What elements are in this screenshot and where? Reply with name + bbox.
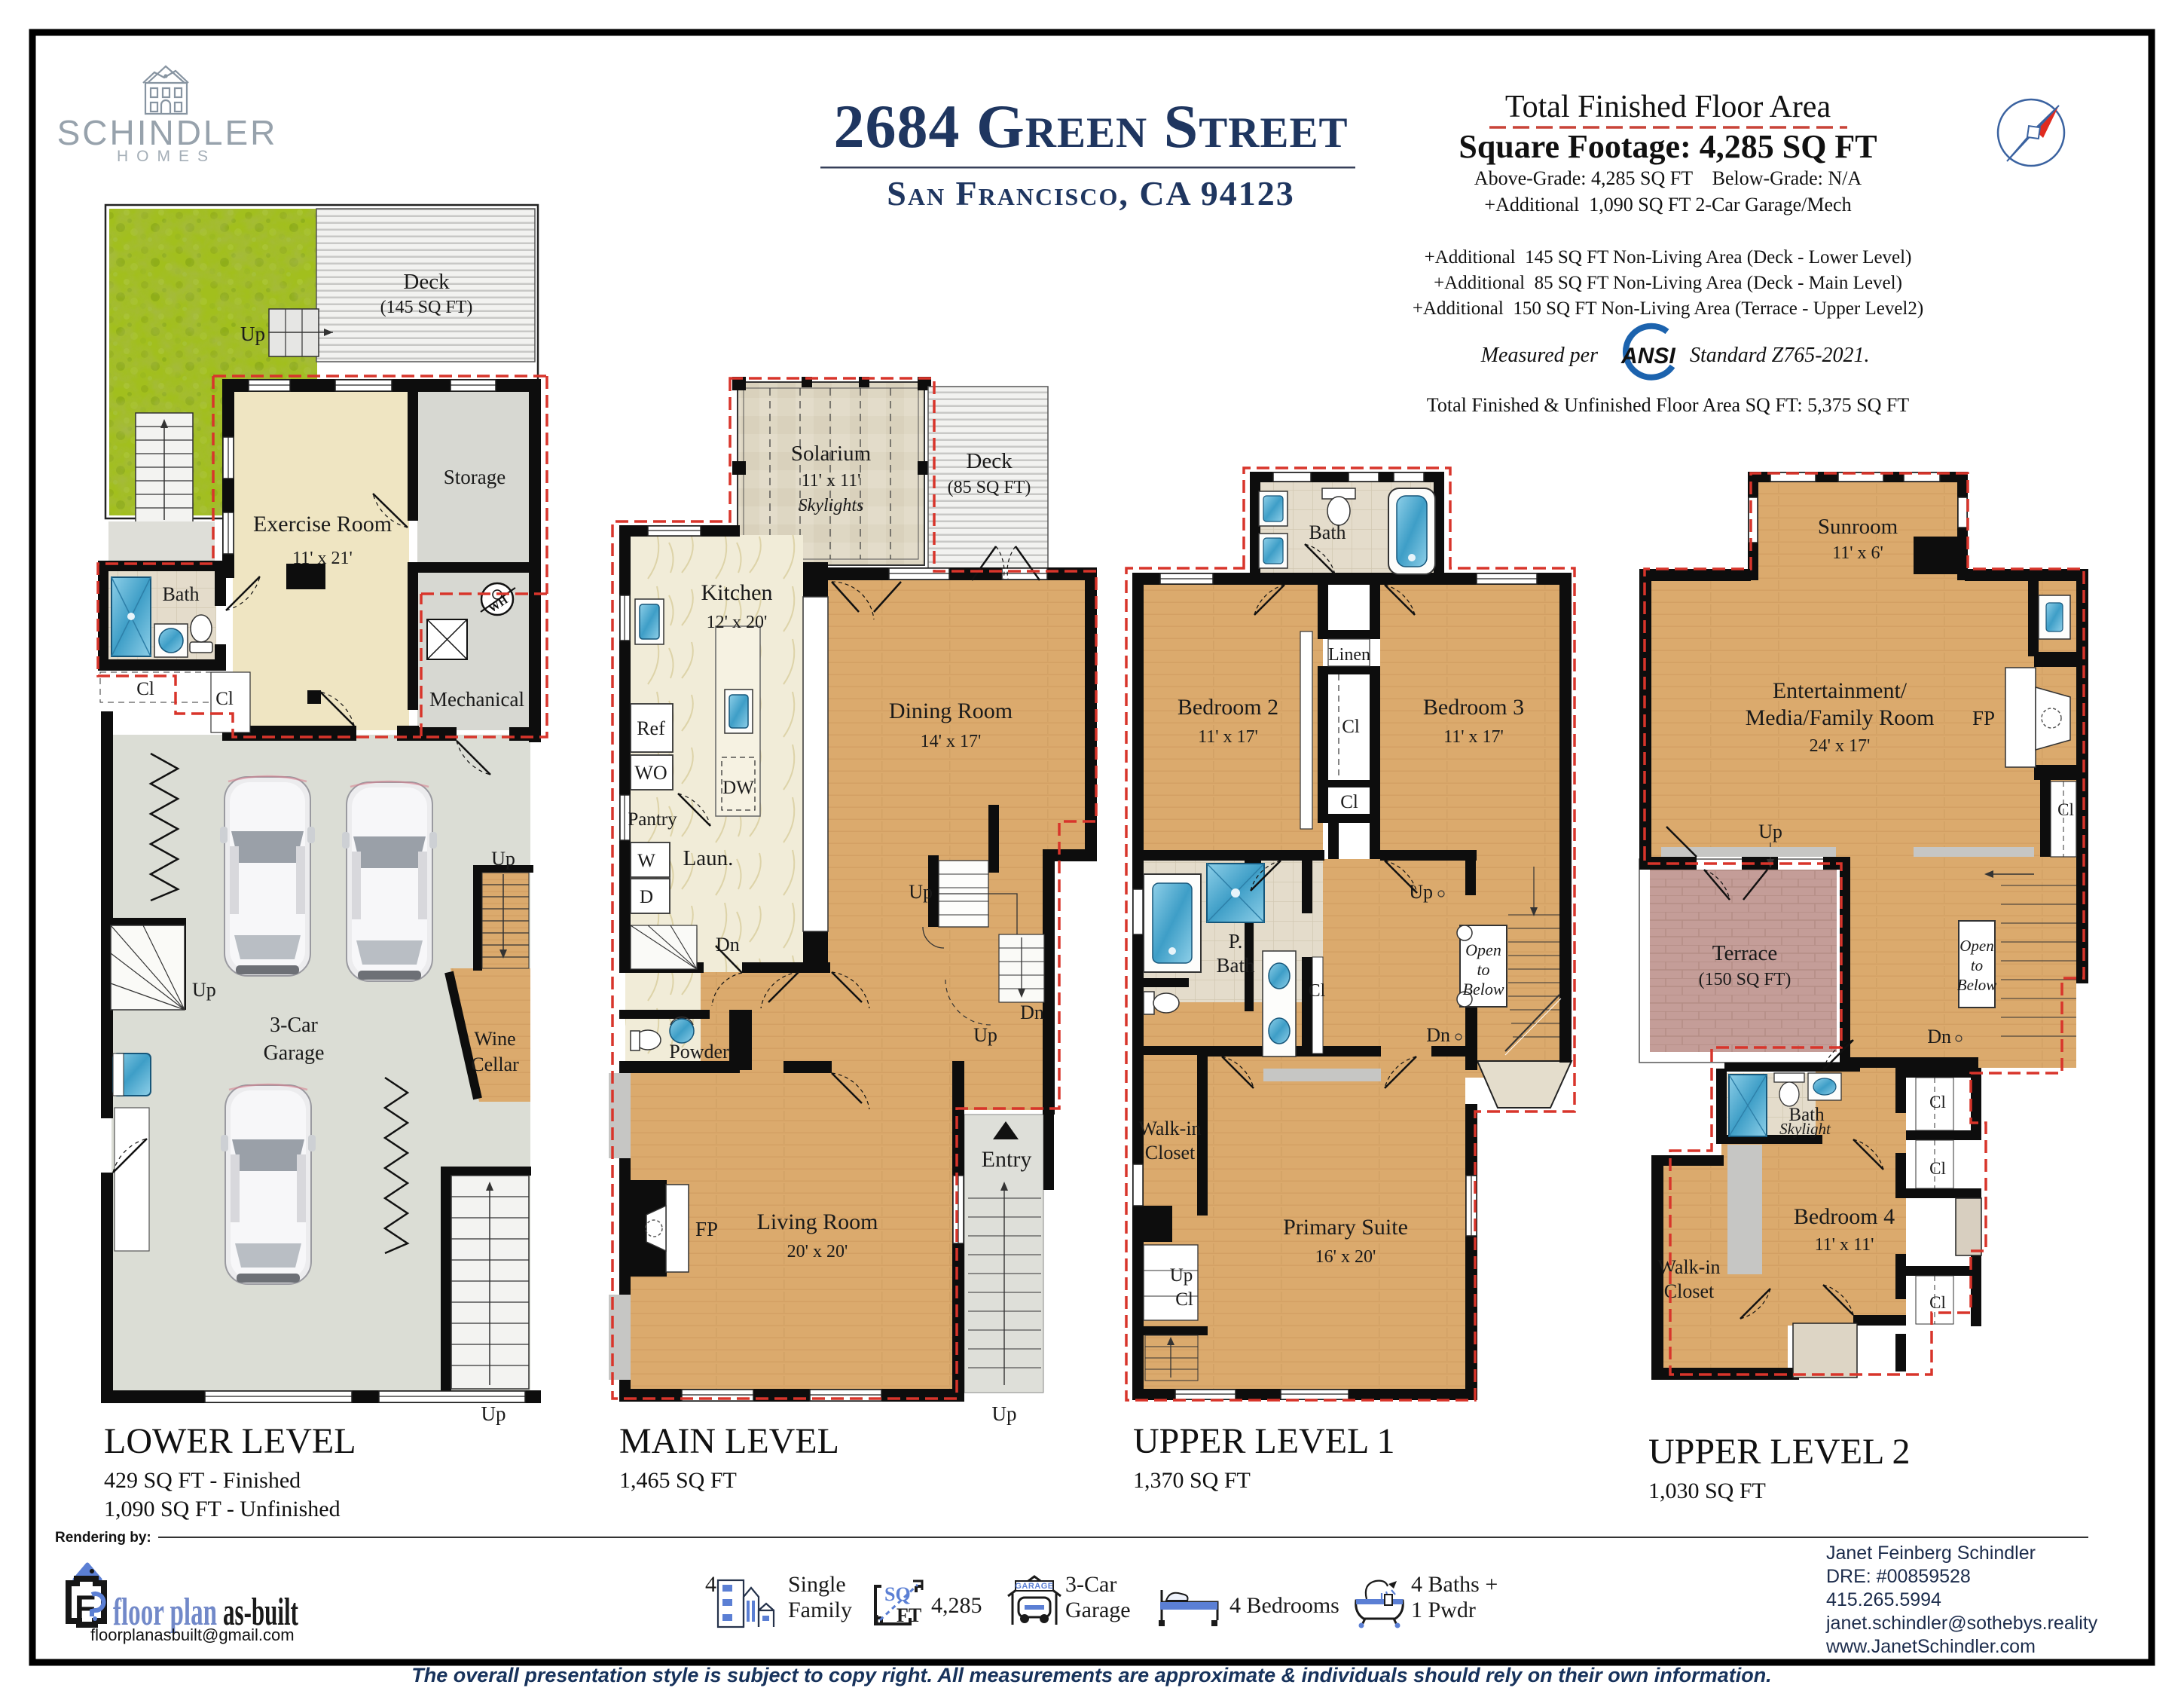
- svg-text:Dn: Dn: [1927, 1026, 1951, 1047]
- svg-text:Up: Up: [973, 1024, 997, 1046]
- svg-text:Cl: Cl: [2057, 800, 2074, 819]
- svg-text:Cl: Cl: [1929, 1293, 1946, 1312]
- svg-text:GARAGE: GARAGE: [1015, 1582, 1053, 1591]
- svg-text:Up: Up: [192, 979, 216, 1001]
- svg-text:floorplanasbuilt@gmail.com: floorplanasbuilt@gmail.com: [90, 1625, 295, 1644]
- svg-text:ANSI: ANSI: [1620, 344, 1675, 368]
- svg-text:Skylights: Skylights: [799, 496, 864, 515]
- svg-text:UPPER LEVEL 2: UPPER LEVEL 2: [1648, 1432, 1911, 1472]
- svg-text:Open: Open: [1465, 940, 1501, 959]
- svg-text:Rendering by:: Rendering by:: [55, 1530, 151, 1546]
- svg-text:UPPER LEVEL 1: UPPER LEVEL 1: [1133, 1421, 1395, 1461]
- svg-text:www.JanetSchindler.com: www.JanetSchindler.com: [1825, 1636, 2036, 1657]
- svg-text:Open: Open: [1959, 937, 1994, 955]
- svg-text:Total Finished & Unfinished Fl: Total Finished & Unfinished Floor Area S…: [1427, 394, 1910, 416]
- svg-text:Living Room: Living Room: [757, 1209, 878, 1234]
- svg-text:Dining Room: Dining Room: [889, 699, 1013, 723]
- svg-text:Cl: Cl: [1929, 1159, 1946, 1178]
- svg-text:12' x 20': 12' x 20': [707, 613, 768, 632]
- svg-text:W: W: [637, 851, 655, 871]
- svg-text:(85 SQ FT): (85 SQ FT): [948, 478, 1031, 497]
- svg-text:Single: Single: [788, 1572, 846, 1597]
- svg-text:Entertainment/: Entertainment/: [1773, 678, 1908, 703]
- svg-text:LOWER LEVEL: LOWER LEVEL: [104, 1421, 356, 1461]
- svg-text:The overall presentation style: The overall presentation style is subjec…: [411, 1664, 1771, 1686]
- svg-text:SQ: SQ: [884, 1583, 911, 1605]
- svg-text:3-Car: 3-Car: [270, 1014, 318, 1037]
- svg-text:MAIN LEVEL: MAIN LEVEL: [619, 1421, 839, 1461]
- svg-text:Terrace: Terrace: [1712, 941, 1778, 965]
- svg-text:D: D: [640, 887, 653, 907]
- svg-text:11' x 6': 11' x 6': [1832, 543, 1883, 563]
- svg-text:+Additional 150 SQ FT Non-Liv: +Additional 150 SQ FT Non-Living Area (T…: [1413, 298, 1923, 319]
- svg-text:Walk-in: Walk-in: [1657, 1256, 1720, 1278]
- svg-text:Linen: Linen: [1328, 645, 1370, 665]
- svg-text:San Francisco, CA 94123: San Francisco, CA 94123: [887, 174, 1295, 213]
- svg-text:Deck: Deck: [403, 270, 450, 294]
- svg-text:20' x 20': 20' x 20': [787, 1242, 848, 1261]
- svg-text:DW: DW: [722, 778, 754, 798]
- svg-text:Above-Grade: 4,285 SQ FT Be: Above-Grade: 4,285 SQ FT Below-Grade: N/…: [1474, 167, 1862, 189]
- svg-text:Primary Suite: Primary Suite: [1283, 1215, 1408, 1240]
- svg-text:Closet: Closet: [1145, 1142, 1196, 1164]
- svg-text:to: to: [1971, 956, 1983, 974]
- svg-text:11' x 17': 11' x 17': [1198, 727, 1258, 747]
- svg-text:Up: Up: [491, 848, 515, 870]
- svg-text:Square Footage: 4,285 SQ FT: Square Footage: 4,285 SQ FT: [1459, 128, 1877, 165]
- svg-text:(145 SQ FT): (145 SQ FT): [380, 298, 473, 317]
- svg-text:Garage: Garage: [264, 1041, 325, 1065]
- svg-text:Wine: Wine: [474, 1028, 515, 1050]
- svg-text:1,090 SQ FT - Unfinished: 1,090 SQ FT - Unfinished: [104, 1497, 341, 1521]
- svg-text:Up: Up: [1170, 1265, 1193, 1286]
- svg-text:HOMES: HOMES: [117, 148, 216, 165]
- svg-text:Walk-in: Walk-in: [1138, 1118, 1201, 1139]
- svg-text:1,465 SQ FT: 1,465 SQ FT: [619, 1468, 737, 1493]
- svg-text:Cl: Cl: [1309, 981, 1326, 1001]
- svg-text:1,030 SQ FT: 1,030 SQ FT: [1648, 1479, 1766, 1503]
- svg-text:Cl: Cl: [215, 689, 234, 709]
- svg-text:Storage: Storage: [444, 466, 506, 488]
- svg-text:janet.schindler@sothebys.reali: janet.schindler@sothebys.reality: [1825, 1613, 2098, 1634]
- svg-text:+Additional 145 SQ FT Non-Liv: +Additional 145 SQ FT Non-Living Area (D…: [1425, 247, 1912, 268]
- svg-text:1 Pwdr: 1 Pwdr: [1411, 1598, 1476, 1622]
- svg-text:Sunroom: Sunroom: [1818, 515, 1898, 539]
- svg-text:Exercise Room: Exercise Room: [253, 512, 392, 537]
- svg-text:4 Baths +: 4 Baths +: [1411, 1572, 1498, 1597]
- svg-text:FT: FT: [897, 1604, 921, 1626]
- svg-text:2684 Green Street: 2684 Green Street: [834, 92, 1349, 161]
- svg-text:(150 SQ FT): (150 SQ FT): [1699, 970, 1791, 989]
- svg-text:Up: Up: [1758, 821, 1782, 842]
- svg-text:Family: Family: [788, 1598, 852, 1622]
- svg-text:Cl: Cl: [1929, 1093, 1946, 1112]
- svg-text:Dn: Dn: [1426, 1024, 1450, 1046]
- svg-text:429 SQ FT - Finished: 429 SQ FT - Finished: [104, 1468, 301, 1493]
- svg-text:Bedroom 4: Bedroom 4: [1794, 1204, 1895, 1229]
- svg-text:Bath: Bath: [1309, 521, 1346, 543]
- svg-text:Cl: Cl: [1340, 792, 1358, 812]
- svg-text:Standard Z765-2021.: Standard Z765-2021.: [1690, 344, 1870, 367]
- svg-text:Up: Up: [1409, 881, 1433, 903]
- svg-text:Entry: Entry: [982, 1147, 1032, 1172]
- svg-text:Below: Below: [1463, 980, 1504, 998]
- svg-text:Up: Up: [240, 323, 265, 345]
- svg-text:Up: Up: [992, 1402, 1017, 1425]
- svg-text:16' x 20': 16' x 20': [1315, 1247, 1376, 1267]
- svg-text:Kitchen: Kitchen: [701, 580, 773, 605]
- svg-text:P.: P.: [1229, 930, 1243, 953]
- svg-text:FP: FP: [1972, 707, 1995, 729]
- svg-text:3-Car: 3-Car: [1065, 1572, 1116, 1597]
- svg-text:Closet: Closet: [1664, 1280, 1715, 1302]
- svg-text:Measured per: Measured per: [1480, 344, 1603, 367]
- svg-text:4 Bedrooms: 4 Bedrooms: [1229, 1593, 1339, 1618]
- svg-text:DRE: #00859528: DRE: #00859528: [1826, 1566, 1971, 1587]
- svg-text:+Additional 85 SQ FT Non-Livi: +Additional 85 SQ FT Non-Living Area (De…: [1434, 273, 1902, 293]
- svg-text:Deck: Deck: [966, 449, 1013, 473]
- svg-text:WO: WO: [634, 762, 667, 784]
- svg-text:Cellar: Cellar: [471, 1053, 519, 1075]
- svg-text:to: to: [1477, 960, 1489, 979]
- svg-text:SCHINDLER: SCHINDLER: [57, 113, 278, 152]
- svg-text:11' x 11': 11' x 11': [1815, 1235, 1874, 1255]
- svg-text:Cl: Cl: [1175, 1289, 1193, 1310]
- svg-text:Bedroom 2: Bedroom 2: [1178, 695, 1278, 720]
- svg-text:1,370 SQ FT: 1,370 SQ FT: [1133, 1468, 1251, 1493]
- svg-text:Ref: Ref: [637, 717, 665, 739]
- svg-text:Below: Below: [1957, 976, 1997, 994]
- svg-text:Bath: Bath: [162, 583, 199, 605]
- svg-text:Pantry: Pantry: [628, 809, 677, 830]
- svg-text:Dn: Dn: [1020, 1001, 1044, 1023]
- svg-text:11' x 17': 11' x 17': [1443, 727, 1504, 747]
- svg-text:415.265.5994: 415.265.5994: [1826, 1589, 1941, 1610]
- svg-text:4: 4: [705, 1572, 716, 1597]
- svg-text:Solarium: Solarium: [791, 442, 872, 466]
- svg-text:Powder: Powder: [669, 1041, 729, 1063]
- svg-text:Laun.: Laun.: [683, 846, 734, 870]
- svg-text:Mechanical: Mechanical: [429, 688, 524, 711]
- svg-text:Cl: Cl: [136, 679, 154, 699]
- svg-text:Janet Feinberg Schindler: Janet Feinberg Schindler: [1826, 1543, 2036, 1564]
- svg-text:Up: Up: [909, 881, 933, 903]
- svg-text:+Additional 1,090 SQ FT 2-Car: +Additional 1,090 SQ FT 2-Car Garage/Mec…: [1484, 194, 1851, 216]
- svg-text:FP: FP: [695, 1218, 718, 1240]
- svg-text:Bath: Bath: [1217, 954, 1255, 977]
- svg-text:24' x 17': 24' x 17': [1810, 736, 1871, 756]
- svg-text:Media/Family Room: Media/Family Room: [1746, 705, 1935, 730]
- svg-text:Up: Up: [481, 1402, 506, 1425]
- svg-text:4,285: 4,285: [931, 1593, 982, 1618]
- svg-text:Garage: Garage: [1065, 1598, 1131, 1622]
- svg-text:11' x 21': 11' x 21': [292, 549, 353, 568]
- svg-text:11' x 11': 11' x 11': [802, 471, 861, 491]
- svg-text:Bedroom 3: Bedroom 3: [1423, 695, 1524, 720]
- svg-text:14' x 17': 14' x 17': [921, 732, 982, 751]
- svg-text:Total Finished Floor Area: Total Finished Floor Area: [1505, 90, 1831, 124]
- svg-text:Cl: Cl: [1342, 717, 1360, 737]
- svg-text:Skylight: Skylight: [1779, 1120, 1831, 1138]
- svg-text:Dn: Dn: [716, 934, 740, 956]
